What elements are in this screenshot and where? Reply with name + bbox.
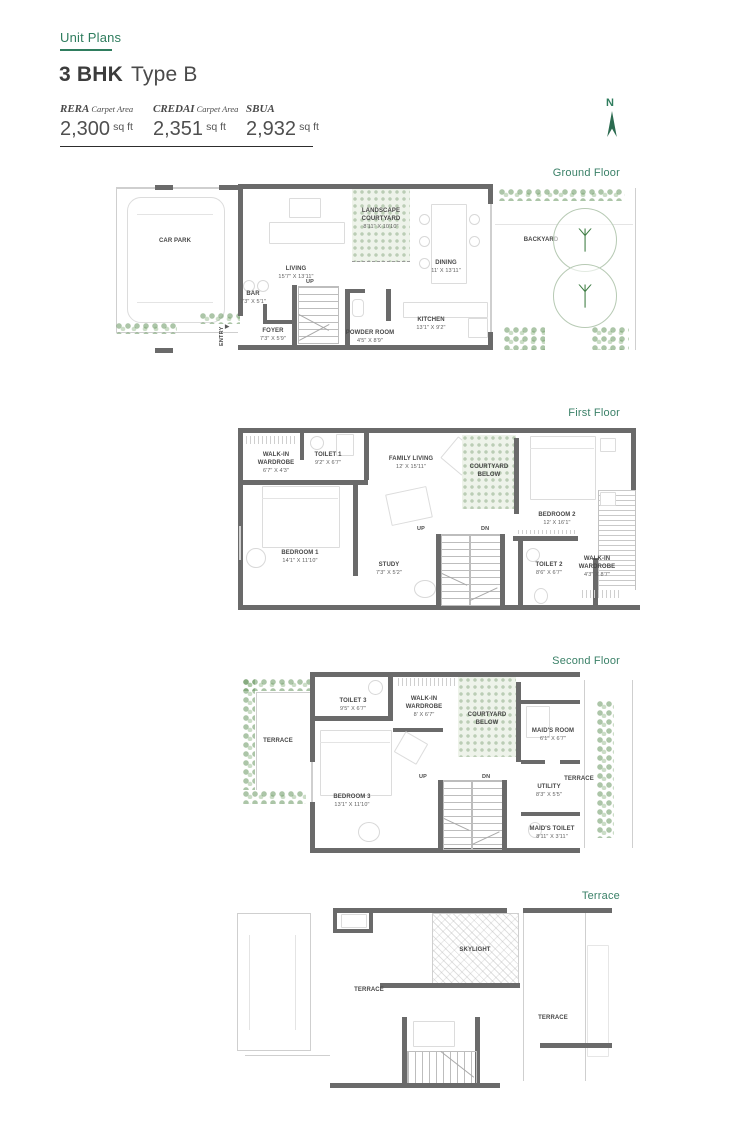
hedge-backyard-right [591,326,629,350]
room-label-powder-room: POWDER ROOM 4'5" X 8'9" [345,330,395,345]
room-label-bedroom-2: BEDROOM 2 12' X 16'1" [528,512,586,527]
north-label: N [606,97,614,109]
room-label-landscape-courtyard: LANDSCAPE COURTYARD 8'11" X 10'10" [353,208,409,231]
second-floor-plan: TERRACE TOILET 3 9'5" X 6'7" WALK-IN WAR… [240,672,640,858]
ground-floor-plan: CAR PARK LIVING 15'7" X 13'11" LANDSCAPE… [113,184,640,356]
stat-sbua-value: 2,932 [246,118,296,140]
hedge-backyard-left [503,326,545,350]
north-arrow-icon [604,111,620,137]
stat-rera: RERACarpet Area 2,300sq ft [60,99,153,141]
hedge-terrace-bottom [242,790,306,804]
stat-credai: CREDAICarpet Area 2,351sq ft [153,99,246,141]
stairs-terrace [407,1051,477,1087]
entry-arrow-icon: ▶ [225,324,229,330]
first-floor-plan: WALK-IN WARDROBE 6'7" X 4'3" TOILET 1 9'… [238,428,640,613]
terrace-floor-label: Terrace [582,890,620,902]
title-light: Type B [131,63,198,86]
room-label-courtyard-below-1: COURTYARD BELOW [462,464,516,480]
stat-rera-value: 2,300 [60,118,110,140]
stairs-second-dn [471,780,504,850]
hedge-terrace-right [596,700,614,838]
unit-plans-tab[interactable]: Unit Plans [60,30,121,45]
room-label-walk-in-wardrobe-3: WALK-IN WARDROBE 8' X 6'7" [398,696,450,719]
stat-credai-sublabel: Carpet Area [197,104,239,114]
stairs-up-label-1f: UP [417,526,425,532]
room-label-toilet-2: TOILET 2 8'6" X 6'7" [526,562,572,577]
room-label-courtyard-below-2: COURTYARD BELOW [458,712,516,728]
stat-rera-sublabel: Carpet Area [91,104,133,114]
stat-credai-label: CREDAI [153,103,195,115]
title-bold: 3 BHK [59,63,123,86]
room-label-terrace-main: TERRACE [341,987,397,995]
room-label-car-park: CAR PARK [143,238,207,246]
room-label-foyer: FOYER 7'3" X 5'9" [253,328,293,343]
ground-floor-label: Ground Floor [553,167,620,179]
hedge-terrace-left [242,678,255,790]
room-label-family-living: FAMILY LIVING 12' X 15'11" [382,456,440,471]
terrace-plan: SKYLIGHT TERRACE TERRACE [235,905,640,1095]
room-label-study: STUDY 7'3" X 5'2" [366,562,412,577]
room-label-kitchen: KITCHEN 13'1" X 9'2" [405,317,457,332]
second-floor-label: Second Floor [552,655,620,667]
area-stats: RERACarpet Area 2,300sq ft CREDAICarpet … [60,99,339,141]
room-label-walk-in-wardrobe-1: WALK-IN WARDROBE 6'7" X 4'3" [252,452,300,475]
stairs-first-up [441,534,471,606]
stairs-up-label: UP [306,279,314,285]
tree-icon: ᛉ [553,264,617,328]
room-label-terrace-right: TERRACE [556,776,602,784]
room-label-utility: UTILITY 8'3" X 5'5" [524,784,574,799]
stat-sbua-unit: sq ft [299,121,319,133]
hedge-carpark [115,322,177,334]
room-label-toilet-3: TOILET 3 9'5" X 6'7" [330,698,376,713]
room-label-terrace-right: TERRACE [527,1015,579,1023]
stairs-first-dn [469,534,502,606]
stairs-second-up [443,780,473,850]
stairs-ground [298,286,339,344]
stat-rera-unit: sq ft [113,121,133,133]
tree-icon: ᛉ [553,208,617,272]
stat-sbua-label: SBUA [246,103,275,115]
room-label-skylight: SKYLIGHT [447,947,503,955]
room-label-bar: BAR 7'3" X 5'1" [235,291,271,306]
room-label-toilet-1: TOILET 1 9'2" X 6'7" [304,452,352,467]
stat-rera-label: RERA [60,103,89,115]
room-label-terrace-left: TERRACE [252,738,304,746]
room-label-bedroom-3: BEDROOM 3 13'1" X 11'10" [322,794,382,809]
page-title: 3 BHKType B [59,63,198,87]
stat-sbua: SBUA 2,932sq ft [246,99,339,141]
header-divider [60,146,313,147]
room-label-maids-toilet: MAID'S TOILET 8'11" X 3'11" [526,826,578,841]
stairs-dn-label-1f: DN [481,526,489,532]
unit-plans-page: { "page": { "eyebrow": "Unit Plans", "ti… [0,0,752,1148]
room-label-walk-in-wardrobe-2: WALK-IN WARDROBE 4'3" X 8'7" [574,556,620,579]
room-label-maids-room: MAID'S ROOM 6'1" X 6'7" [528,728,578,743]
stat-credai-unit: sq ft [206,121,226,133]
room-label-living: LIVING 15'7" X 13'11" [265,266,327,281]
room-label-bedroom-1: BEDROOM 1 14'1" X 11'10" [270,550,330,565]
stat-credai-value: 2,351 [153,118,203,140]
hedge-backyard-top [498,188,625,201]
unit-plans-underline [60,49,112,51]
stairs-up-label-2f: UP [419,774,427,780]
first-floor-label: First Floor [568,407,620,419]
room-label-dining: DINING 11' X 13'11" [421,260,471,275]
